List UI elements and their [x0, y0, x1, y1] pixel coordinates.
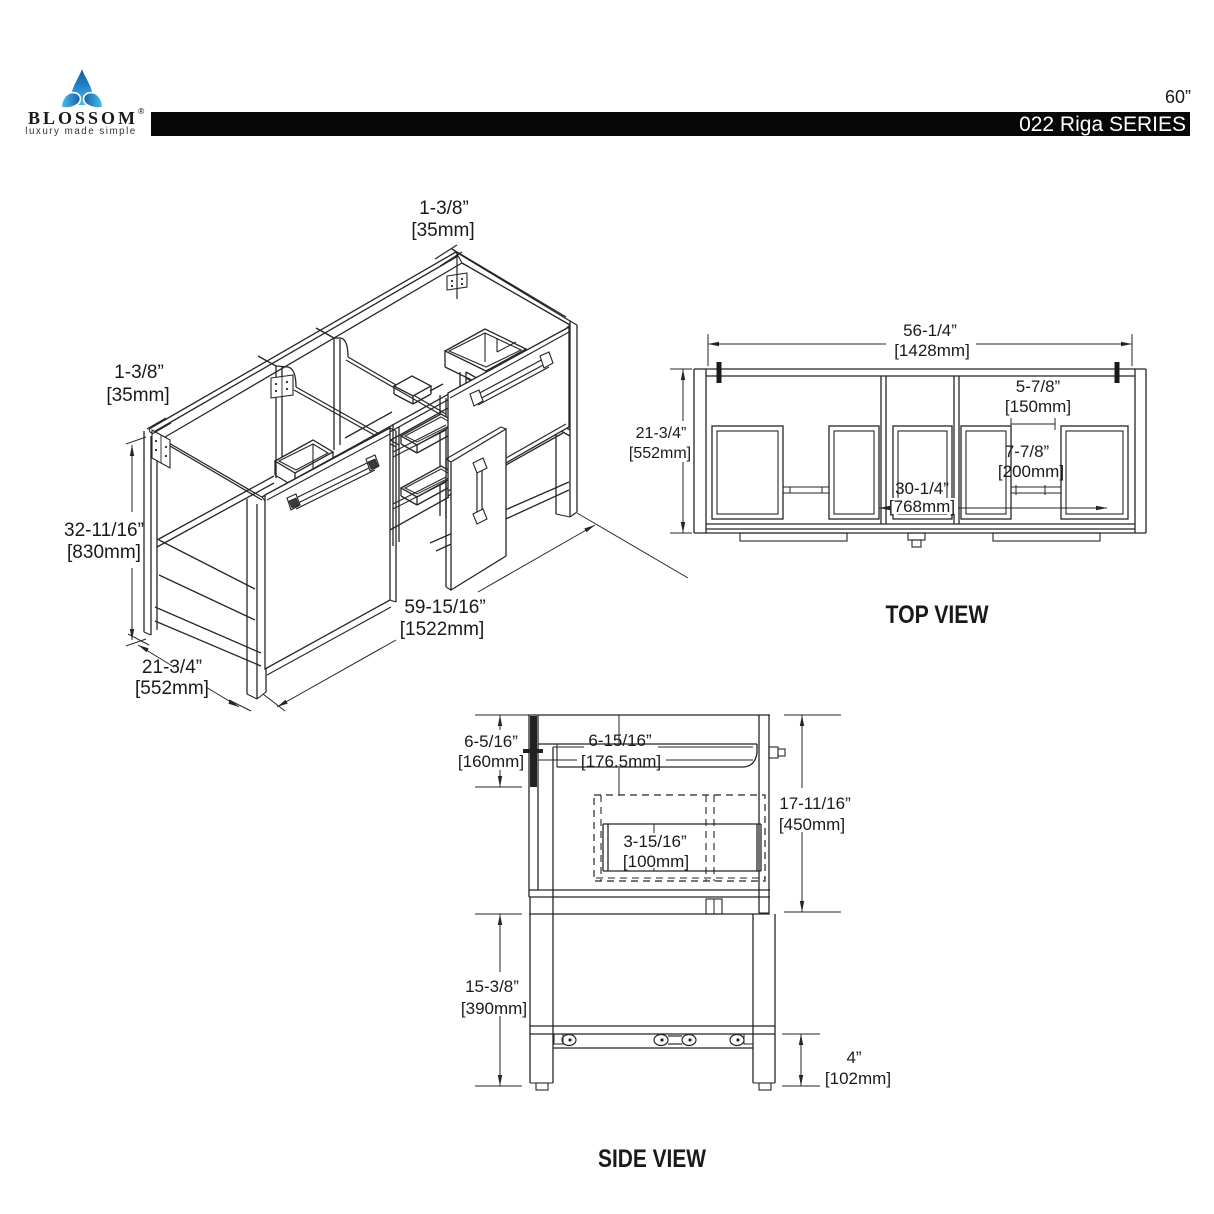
svg-text:[390mm]: [390mm] [461, 999, 527, 1018]
svg-text:30-1/4”: 30-1/4” [895, 479, 949, 498]
svg-text:5-7/8”: 5-7/8” [1016, 377, 1061, 396]
svg-text:[552mm]: [552mm] [629, 445, 691, 462]
svg-text:[1428mm]: [1428mm] [894, 341, 970, 360]
svg-text:[1522mm]: [1522mm] [400, 619, 484, 640]
svg-text:[150mm]: [150mm] [1005, 397, 1071, 416]
svg-text:SIDE VIEW: SIDE VIEW [598, 1145, 706, 1173]
svg-text:15-3/8”: 15-3/8” [465, 977, 519, 996]
svg-text:21-3/4”: 21-3/4” [636, 425, 687, 442]
svg-text:[160mm]: [160mm] [458, 752, 524, 771]
svg-text:7-7/8”: 7-7/8” [1005, 442, 1050, 461]
svg-text:3-15/16”: 3-15/16” [623, 832, 687, 851]
svg-text:[35mm]: [35mm] [106, 385, 169, 406]
svg-text:®: ® [138, 106, 145, 116]
svg-text:1-3/8”: 1-3/8” [419, 198, 469, 219]
svg-text:1-3/8”: 1-3/8” [114, 362, 164, 383]
svg-text:[100mm]: [100mm] [623, 852, 689, 871]
svg-text:17-11/16”: 17-11/16” [779, 794, 851, 813]
svg-text:56-1/4”: 56-1/4” [903, 321, 957, 340]
svg-text:BLOSSOM: BLOSSOM [28, 108, 138, 128]
svg-text:59-15/16”: 59-15/16” [404, 597, 485, 618]
svg-text:[450mm]: [450mm] [779, 815, 845, 834]
svg-text:[200mm]: [200mm] [998, 462, 1064, 481]
svg-text:6-5/16”: 6-5/16” [464, 732, 518, 751]
svg-text:32-11/16”: 32-11/16” [64, 520, 144, 541]
svg-text:21-3/4”: 21-3/4” [142, 657, 202, 678]
svg-text:4”: 4” [846, 1048, 861, 1067]
svg-text:6-15/16”: 6-15/16” [588, 731, 652, 750]
svg-text:022 Riga SERIES: 022 Riga SERIES [1019, 113, 1186, 136]
svg-text:[768mm]: [768mm] [889, 497, 955, 516]
svg-text:[176.5mm]: [176.5mm] [581, 752, 661, 771]
svg-text:luxury made simple: luxury made simple [25, 126, 136, 137]
svg-text:[35mm]: [35mm] [411, 220, 474, 241]
svg-text:TOP VIEW: TOP VIEW [886, 601, 989, 629]
svg-text:60”: 60” [1165, 87, 1191, 107]
svg-text:[552mm]: [552mm] [135, 678, 209, 699]
svg-text:[102mm]: [102mm] [825, 1069, 891, 1088]
svg-text:[830mm]: [830mm] [67, 542, 141, 563]
